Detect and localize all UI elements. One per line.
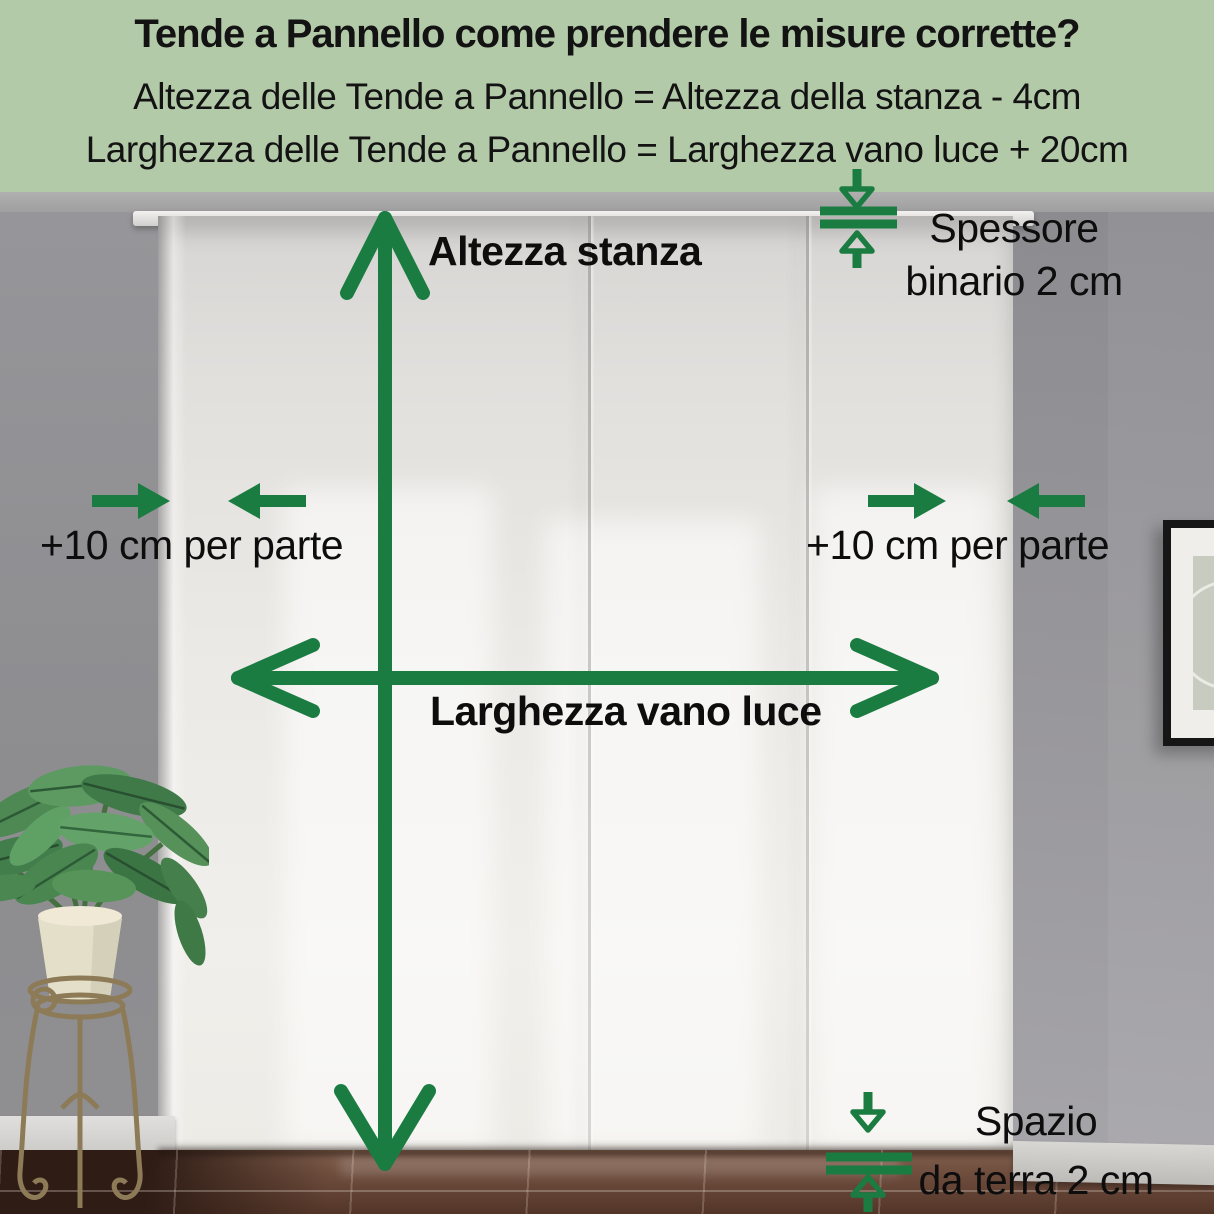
picture-frame xyxy=(1163,520,1214,746)
right-extension-label: +10 cm per parte xyxy=(806,522,1109,569)
room-height-label: Altezza stanza xyxy=(428,228,701,275)
page-title: Tende a Pannello come prendere le misure… xyxy=(0,12,1214,57)
header-banner: Tende a Pannello come prendere le misure… xyxy=(0,0,1214,192)
window-width-label: Larghezza vano luce xyxy=(430,688,822,735)
panel-curtains xyxy=(158,216,1013,1155)
panel-seam xyxy=(806,216,809,1155)
floor-gap-line2: da terra 2 cm xyxy=(898,1151,1174,1210)
potted-plant-icon xyxy=(0,748,209,1214)
circle-artwork-icon xyxy=(1193,580,1214,690)
floor-gap-line1: Spazio xyxy=(898,1092,1174,1151)
plant-stand xyxy=(20,978,140,1208)
picture-mat xyxy=(1171,528,1214,738)
floor-reflection xyxy=(340,1155,900,1176)
curtain-shadow xyxy=(158,1148,1013,1156)
light-glow xyxy=(284,488,493,1150)
track-thickness-label: Spessore binario 2 cm xyxy=(876,202,1152,308)
left-extension-label: +10 cm per parte xyxy=(40,522,343,569)
track-thickness-line2: binario 2 cm xyxy=(876,255,1152,308)
floor-gap-label: Spazio da terra 2 cm xyxy=(898,1092,1174,1210)
picture-art xyxy=(1193,556,1214,710)
formula-height: Altezza delle Tende a Pannello = Altezza… xyxy=(0,70,1214,123)
measurement-infographic: Tende a Pannello come prendere le misure… xyxy=(0,0,1214,1214)
panel-seam xyxy=(588,216,591,1155)
light-glow xyxy=(813,487,993,1150)
light-glow xyxy=(545,520,760,1150)
track-thickness-line1: Spessore xyxy=(876,202,1152,255)
formula-width: Larghezza delle Tende a Pannello = Largh… xyxy=(0,123,1214,176)
